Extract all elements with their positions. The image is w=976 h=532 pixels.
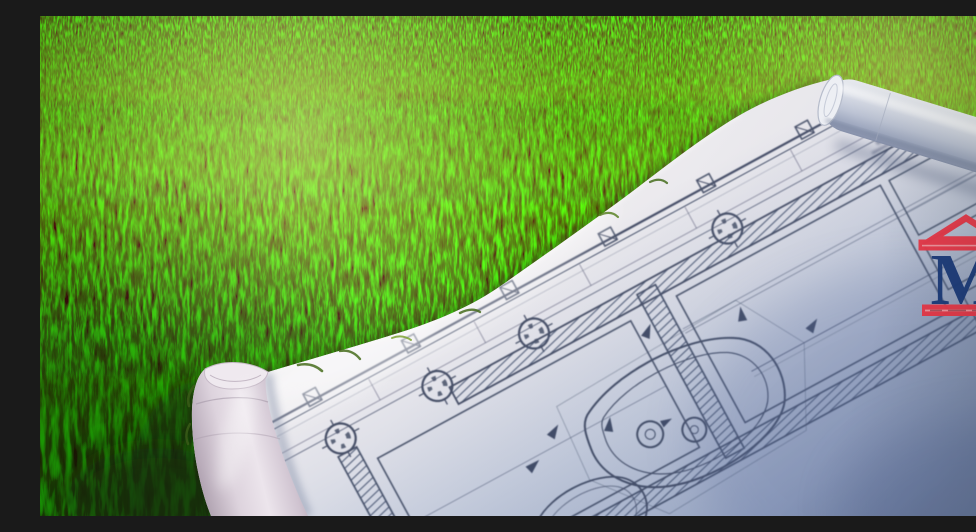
photo-blueprint-on-grass: M (40, 16, 976, 516)
vignette (40, 16, 976, 516)
